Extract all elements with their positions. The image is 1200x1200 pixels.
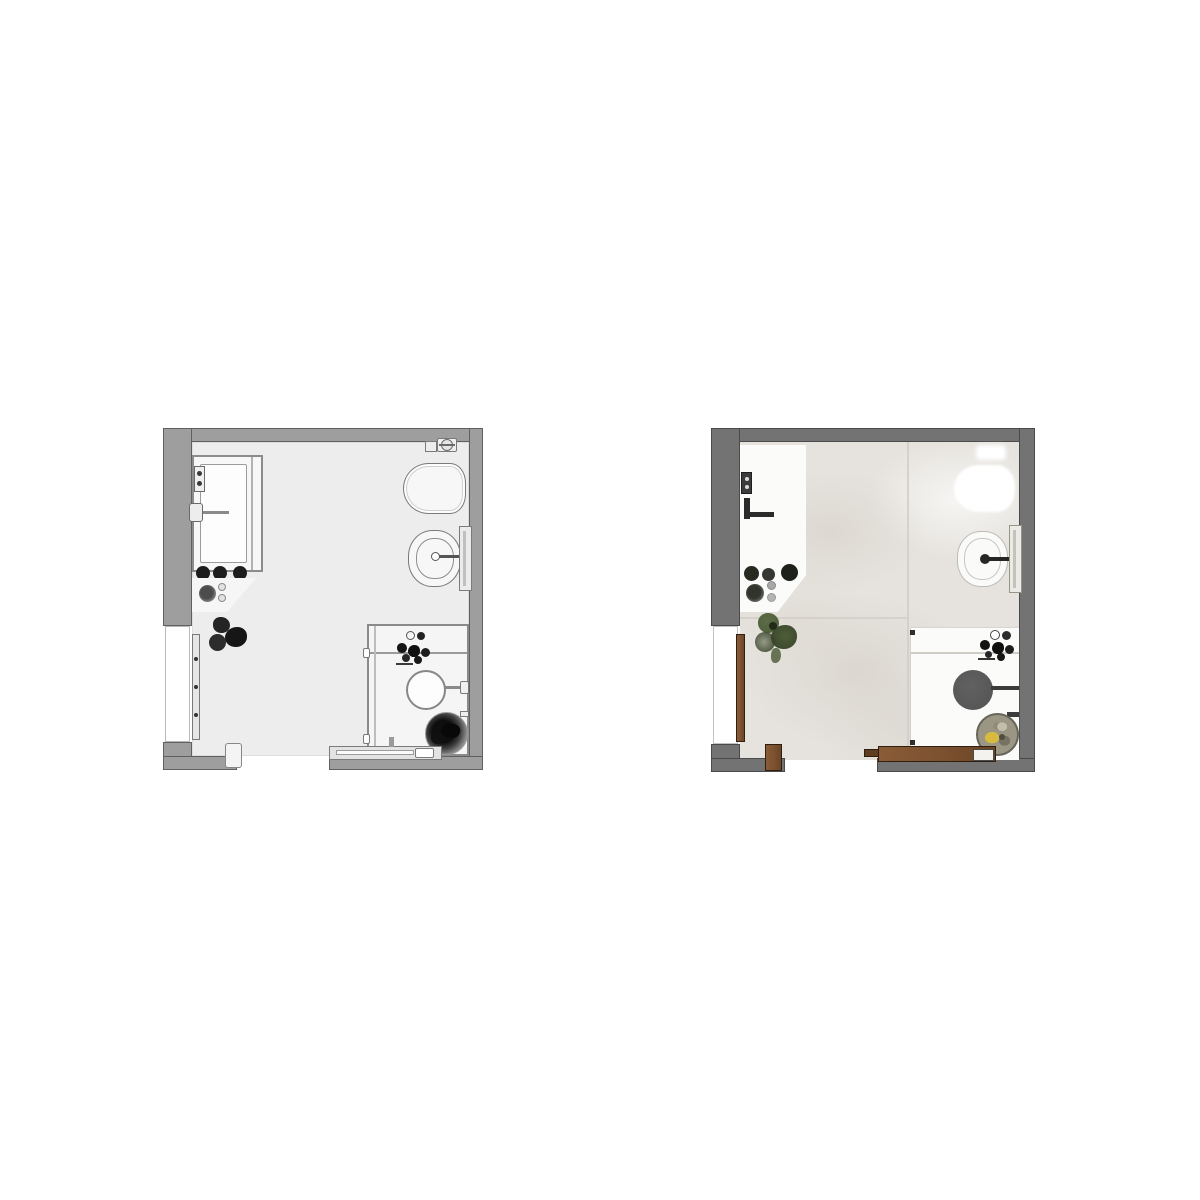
toiletry-dot — [414, 656, 422, 664]
shower-stool — [953, 670, 993, 710]
wall-control-panel — [741, 472, 752, 494]
cistern — [976, 445, 1006, 460]
door-opening — [713, 626, 738, 744]
shower-pivot — [363, 648, 370, 658]
toilet — [403, 463, 466, 514]
door-hinge-dot — [194, 657, 198, 661]
wall-bracket-line — [463, 531, 466, 586]
toiletry-line — [978, 658, 995, 660]
knob — [744, 566, 759, 581]
knob — [233, 566, 247, 580]
knob — [762, 568, 775, 581]
counter-bowl-large — [199, 585, 216, 602]
control-dot — [745, 477, 749, 481]
door-handle-dot — [194, 685, 198, 689]
floor-seam-vertical — [907, 442, 909, 760]
sliding-door-handle — [973, 749, 994, 761]
counter-bowl-large — [746, 584, 764, 602]
wall-right — [469, 428, 483, 770]
counter-bowl-small — [767, 581, 776, 590]
plant — [209, 634, 226, 651]
cistern-box — [425, 441, 437, 452]
planter-leaf — [431, 732, 444, 744]
wall-control-panel — [194, 466, 205, 492]
toiletry-dot — [402, 654, 410, 662]
shower-seat — [406, 670, 446, 710]
counter-bowl-small — [767, 593, 776, 602]
toiletry-line — [396, 663, 413, 665]
stool-arm — [991, 686, 1019, 690]
counter-bowl-small — [218, 594, 226, 602]
door-jamb — [765, 744, 782, 771]
schematic-floor-plan — [163, 428, 483, 770]
arm-bracket — [460, 681, 469, 694]
plant — [225, 627, 247, 647]
shower-glass-line — [374, 626, 376, 754]
knob — [781, 564, 798, 581]
accessory-ring — [990, 630, 1000, 640]
plant-stem — [769, 622, 777, 630]
wall-left — [711, 428, 740, 626]
door-jamb — [225, 743, 242, 768]
accessory-dot — [417, 632, 425, 640]
control-dot — [197, 481, 202, 486]
shower-pivot — [363, 734, 370, 744]
entry-door-leaf — [736, 634, 745, 742]
wall-fitting — [460, 711, 469, 717]
control-dot — [197, 471, 202, 476]
toiletry-dot — [980, 640, 990, 650]
tub-faucet-handle — [189, 503, 203, 522]
sliding-door-handle — [415, 748, 434, 758]
sliding-door-glass — [336, 750, 414, 755]
door-hinge-dot — [194, 713, 198, 717]
tub-faucet-spout — [203, 511, 229, 514]
wall-bracket-line — [1013, 530, 1016, 588]
toiletry-dot — [397, 643, 407, 653]
knob — [213, 566, 227, 580]
toiletry-dot — [985, 651, 992, 658]
wall-left — [163, 428, 192, 626]
wall-right — [1019, 428, 1035, 772]
rendered-floor-plan — [711, 428, 1035, 772]
wall-top — [711, 428, 1035, 442]
toiletry-dot — [997, 653, 1005, 661]
door-opening — [165, 626, 190, 742]
track-stem — [389, 737, 394, 747]
corner-tick — [910, 740, 915, 745]
control-dot — [745, 485, 749, 489]
toiletry-dot — [421, 648, 430, 657]
corner-tick — [910, 630, 915, 635]
counter-bowl-small — [218, 583, 226, 591]
entry-door-leaf — [192, 634, 200, 740]
wall-top — [163, 428, 483, 442]
vanity-faucet-spout — [744, 512, 774, 517]
pot-speck — [999, 734, 1005, 740]
bathtub-rim-line — [251, 457, 253, 570]
accessory-ring — [406, 631, 415, 640]
track-stub — [864, 749, 879, 757]
toilet — [954, 465, 1015, 512]
floor-plan-comparison — [0, 0, 1200, 1200]
accessory-dot — [1002, 631, 1011, 640]
toiletry-dot — [1005, 645, 1014, 654]
knob — [196, 566, 210, 580]
cistern-dial-line — [439, 444, 455, 446]
